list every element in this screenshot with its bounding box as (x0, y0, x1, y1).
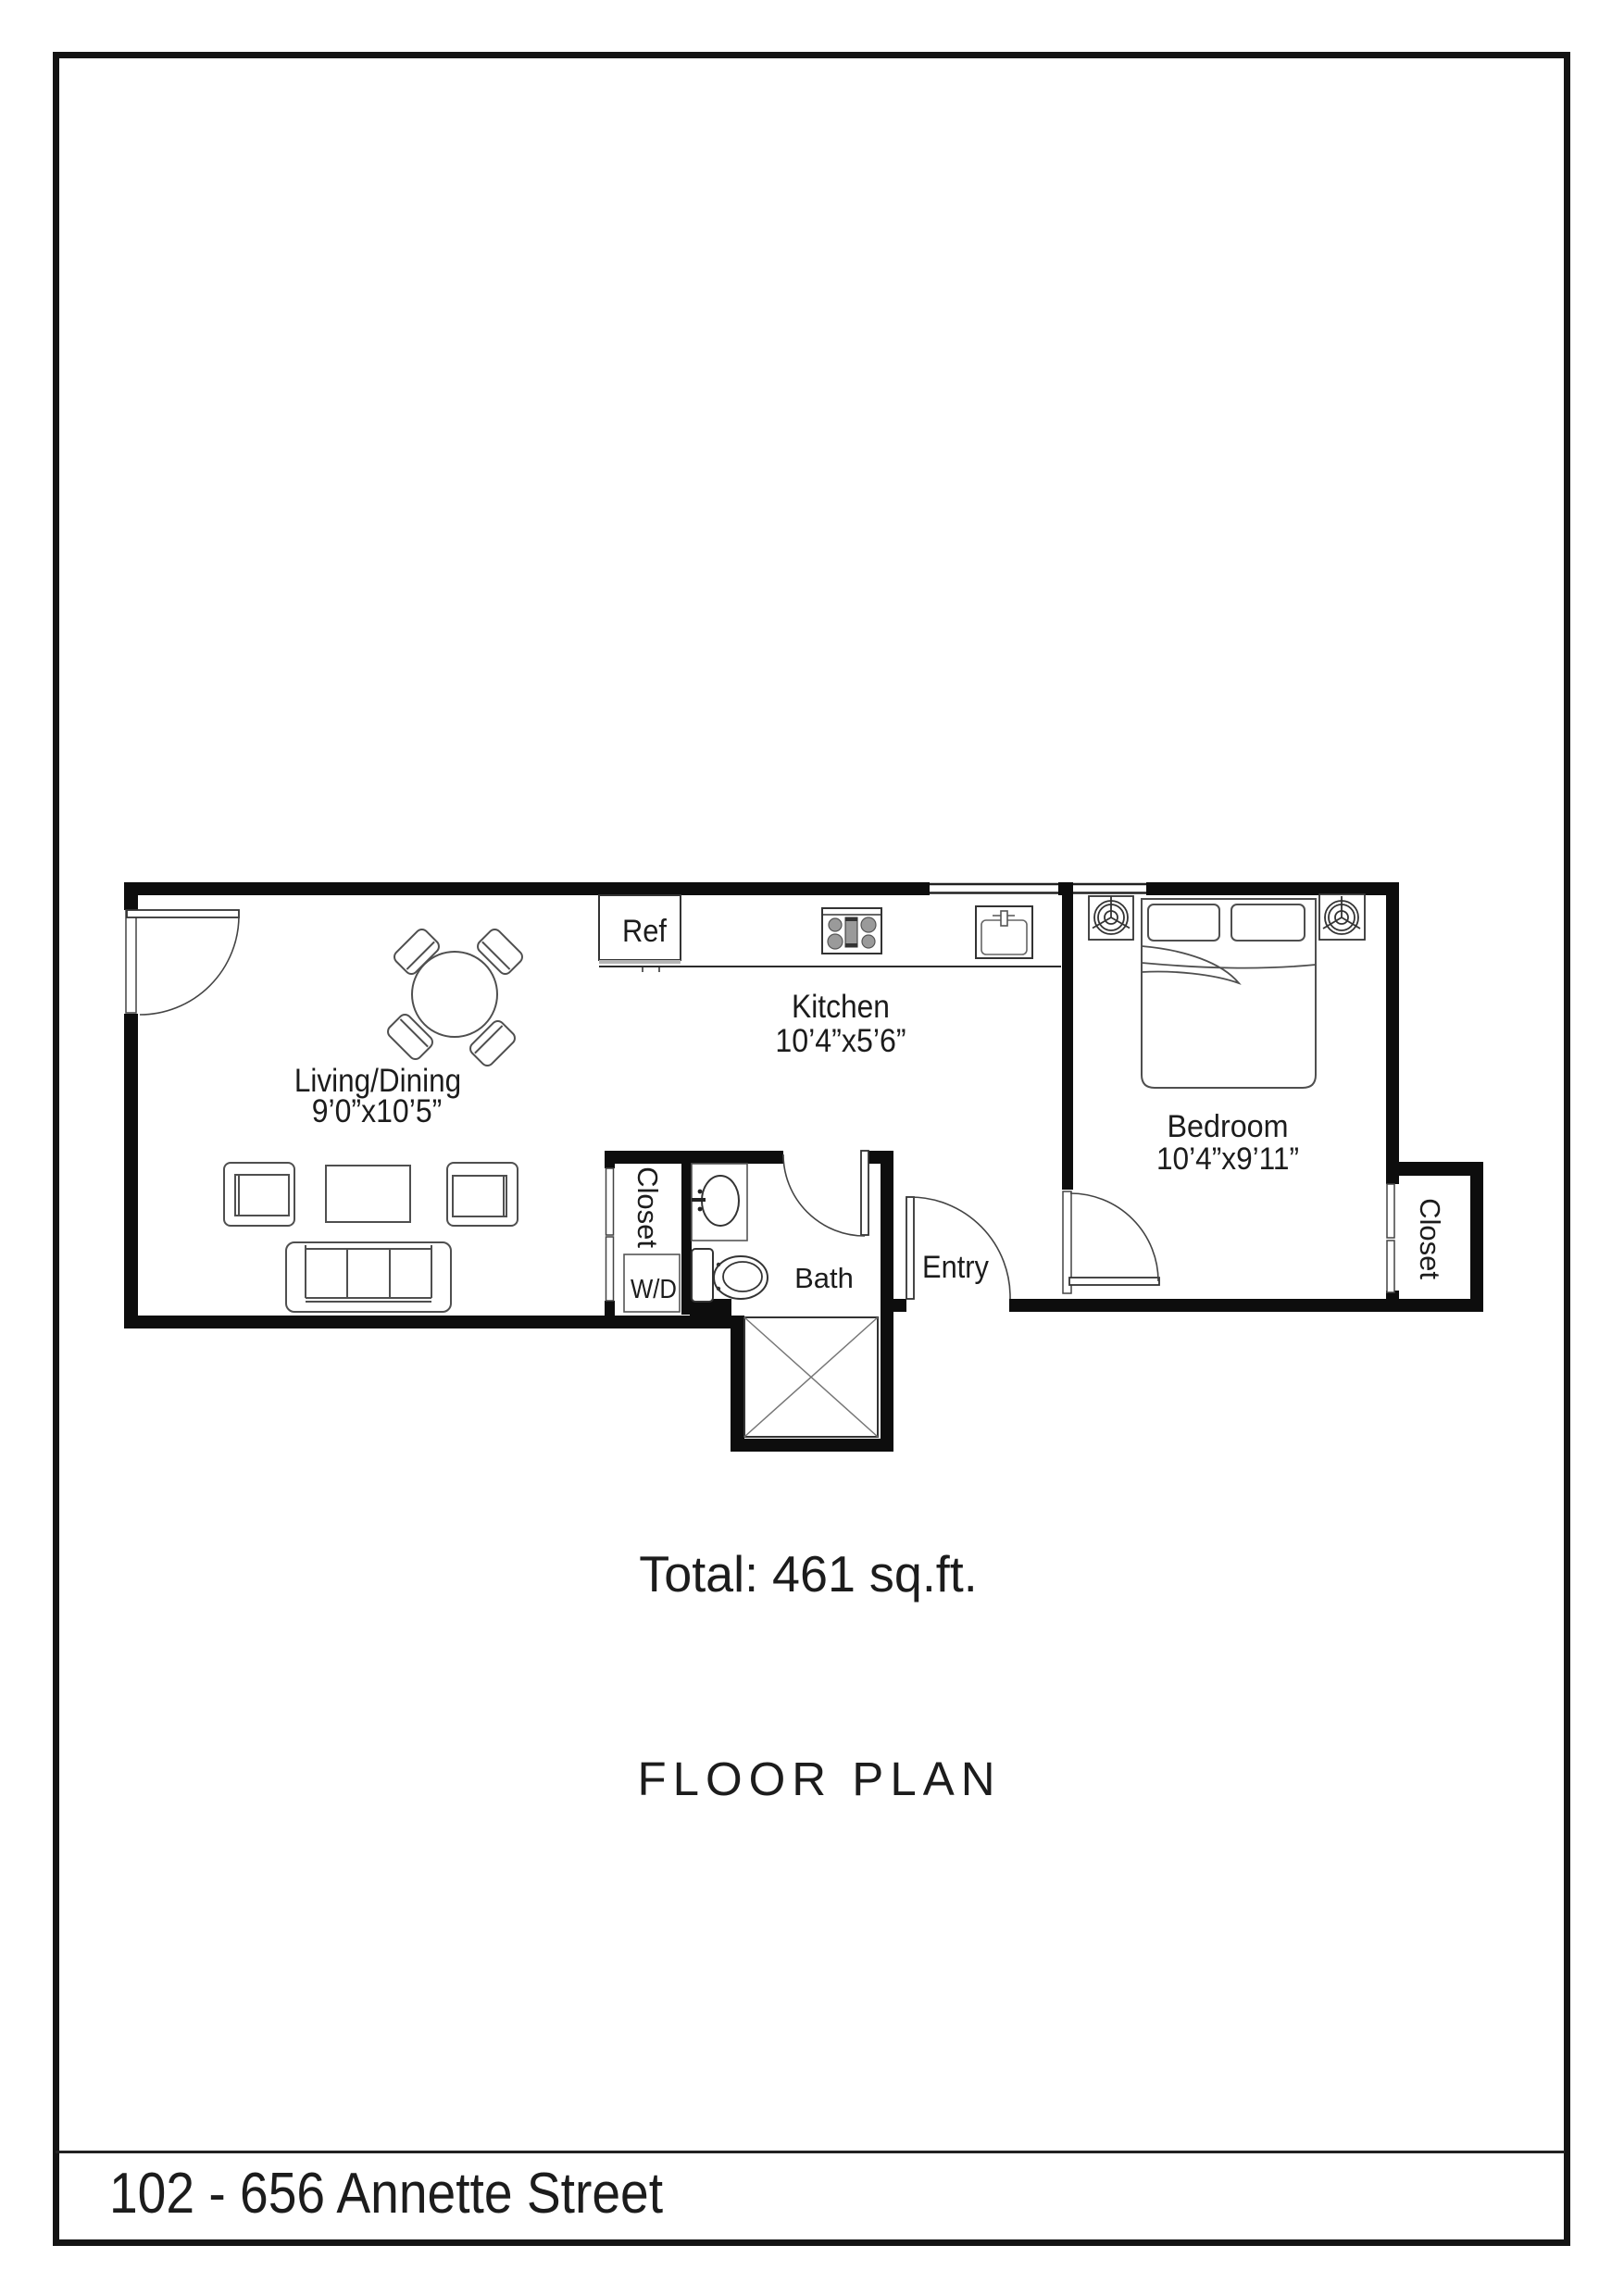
svg-text:Ref: Ref (622, 914, 668, 949)
svg-text:Entry: Entry (922, 1250, 990, 1285)
svg-text:9’0”x10’5”: 9’0”x10’5” (312, 1094, 443, 1130)
svg-text:FLOOR PLAN: FLOOR PLAN (637, 1752, 1001, 1805)
svg-text:Closet: Closet (631, 1166, 664, 1248)
svg-text:Bath: Bath (794, 1262, 854, 1294)
svg-text:Bedroom: Bedroom (1167, 1109, 1288, 1144)
svg-text:Kitchen: Kitchen (792, 990, 890, 1026)
svg-text:Total: 461 sq.ft.: Total: 461 sq.ft. (639, 1546, 977, 1603)
svg-text:10’4”x9’11”: 10’4”x9’11” (1156, 1141, 1299, 1176)
svg-text:Closet: Closet (1414, 1198, 1446, 1279)
svg-text:W/D: W/D (631, 1274, 677, 1304)
svg-text:10’4”x5’6”: 10’4”x5’6” (775, 1024, 906, 1060)
svg-text:102 - 656 Annette Street: 102 - 656 Annette Street (109, 2162, 663, 2226)
